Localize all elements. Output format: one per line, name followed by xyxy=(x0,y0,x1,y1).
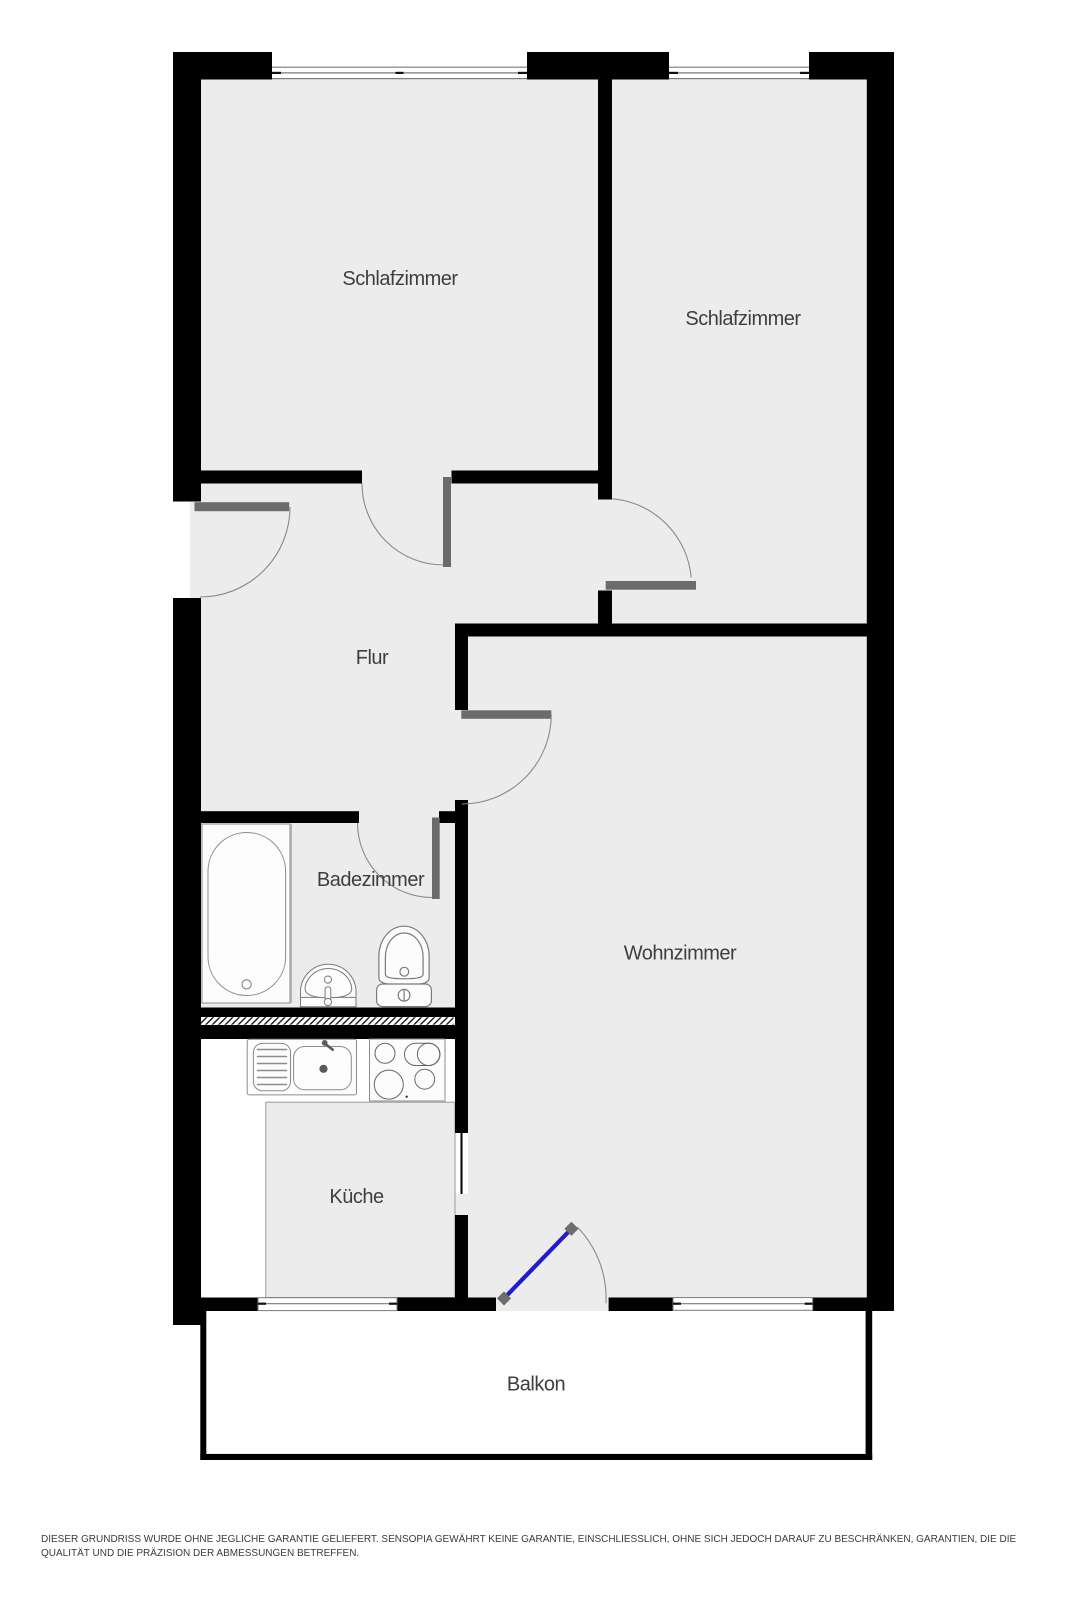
svg-text:Badezimmer: Badezimmer xyxy=(317,869,425,891)
svg-text:Küche: Küche xyxy=(329,1186,384,1208)
svg-text:QUALITÄT UND DIE PRÄZISION DER: QUALITÄT UND DIE PRÄZISION DER ABMESSUNG… xyxy=(41,1547,359,1559)
svg-text:Schlafzimmer: Schlafzimmer xyxy=(685,308,801,330)
svg-text:DIESER GRUNDRISS WURDE OHNE JE: DIESER GRUNDRISS WURDE OHNE JEGLICHE GAR… xyxy=(41,1533,1017,1545)
svg-text:Flur: Flur xyxy=(356,647,389,669)
svg-text:Balkon: Balkon xyxy=(507,1374,565,1396)
svg-text:Schlafzimmer: Schlafzimmer xyxy=(342,268,458,290)
svg-text:Wohnzimmer: Wohnzimmer xyxy=(624,943,737,965)
